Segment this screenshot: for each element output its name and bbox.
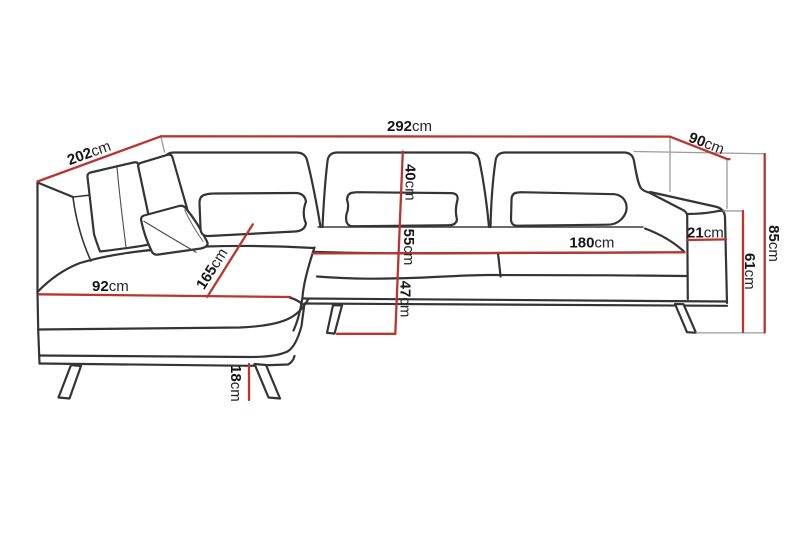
svg-text:61cm: 61cm bbox=[741, 253, 758, 290]
svg-text:85cm: 85cm bbox=[765, 225, 782, 262]
svg-text:47cm: 47cm bbox=[397, 281, 414, 318]
svg-text:18cm: 18cm bbox=[227, 365, 244, 402]
svg-text:21cm: 21cm bbox=[687, 225, 724, 242]
svg-text:40cm: 40cm bbox=[401, 164, 418, 201]
svg-text:180cm: 180cm bbox=[569, 234, 614, 251]
svg-text:292cm: 292cm bbox=[387, 118, 432, 135]
svg-text:92cm: 92cm bbox=[92, 278, 129, 295]
svg-text:55cm: 55cm bbox=[400, 229, 417, 266]
